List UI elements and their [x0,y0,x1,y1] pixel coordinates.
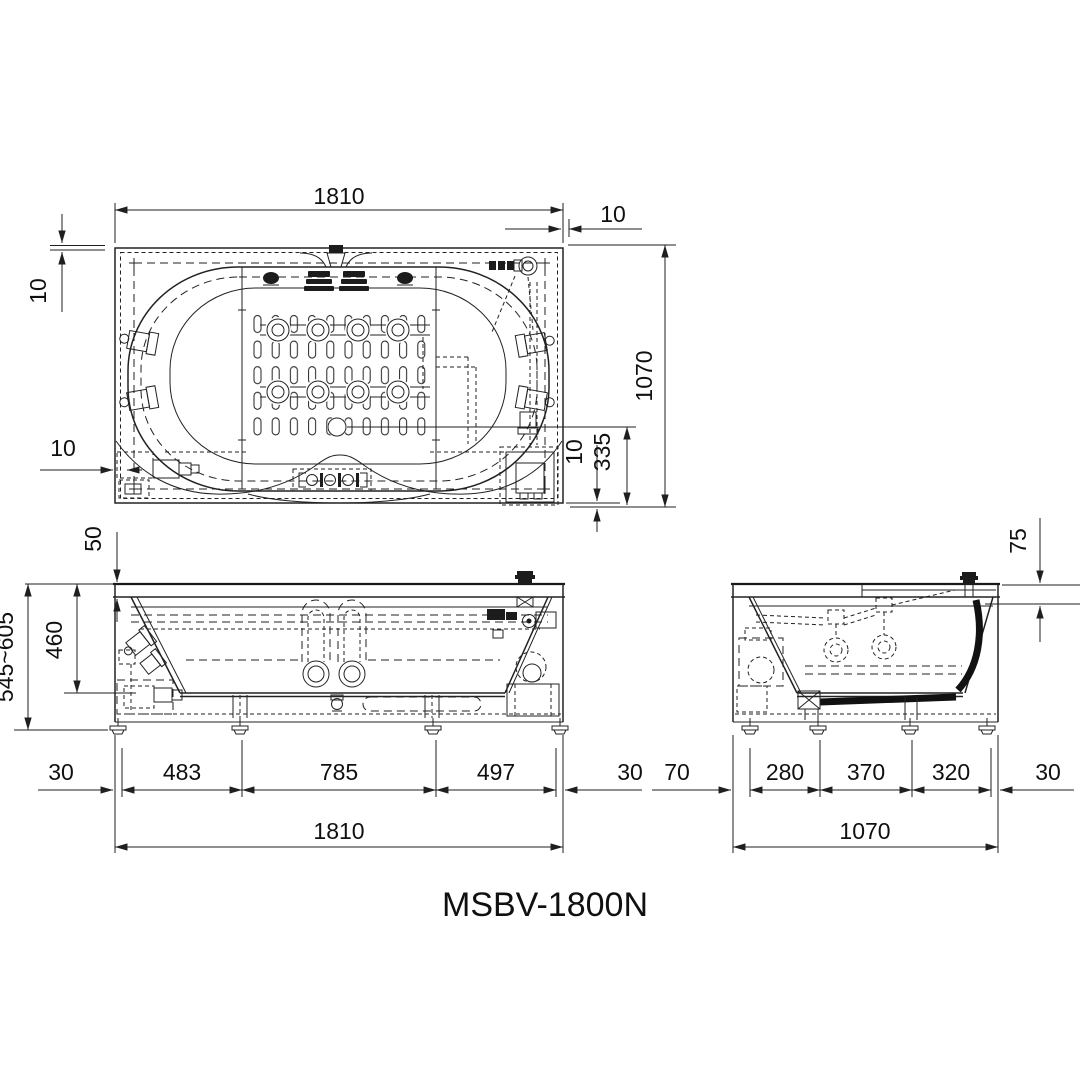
floor-jet [385,317,411,343]
spout-icon [329,245,343,253]
dim-label: 30 [617,759,643,785]
floor-jet [265,379,291,405]
dim-label: 280 [766,759,804,785]
faucet-handle-right [339,271,369,291]
dim-label: 370 [847,759,885,785]
floor-jet [305,317,331,343]
dim-label: 497 [477,759,515,785]
dim-label: 1810 [313,818,364,844]
faucet-handle-left [304,271,334,291]
technical-drawing-sheet: 1810 10 10 1070 335 10 [0,0,1090,1090]
dim-label: 320 [932,759,970,785]
dim-label: 70 [664,759,690,785]
dim-label: 10 [561,439,587,465]
model-title: MSBV-1800N [442,886,648,924]
dim-label: 1810 [313,183,364,209]
dim-label: 785 [320,759,358,785]
dim-label: 50 [80,526,106,552]
dim-label: 460 [41,621,67,659]
dim-label: 335 [589,433,615,471]
dim-label: 75 [1005,528,1031,554]
drain [327,417,347,437]
floor-jet [305,379,331,405]
dim-label: 483 [163,759,201,785]
floor-jet [385,379,411,405]
floor-jet [345,317,371,343]
dim-label: 10 [25,278,51,304]
dim-label: 30 [48,759,74,785]
dim-label: 30 [1035,759,1061,785]
floor-jet [345,379,371,405]
dim-label: 1070 [839,818,890,844]
bathtub-drawing: 1810 10 10 1070 335 10 [0,0,1090,1090]
dim-label: 10 [50,435,76,461]
dim-label: 10 [600,201,626,227]
floor-jet [265,317,291,343]
dim-label: 1070 [631,350,657,401]
sheet-background [0,0,1090,1090]
dim-label: 545~605 [0,612,18,702]
